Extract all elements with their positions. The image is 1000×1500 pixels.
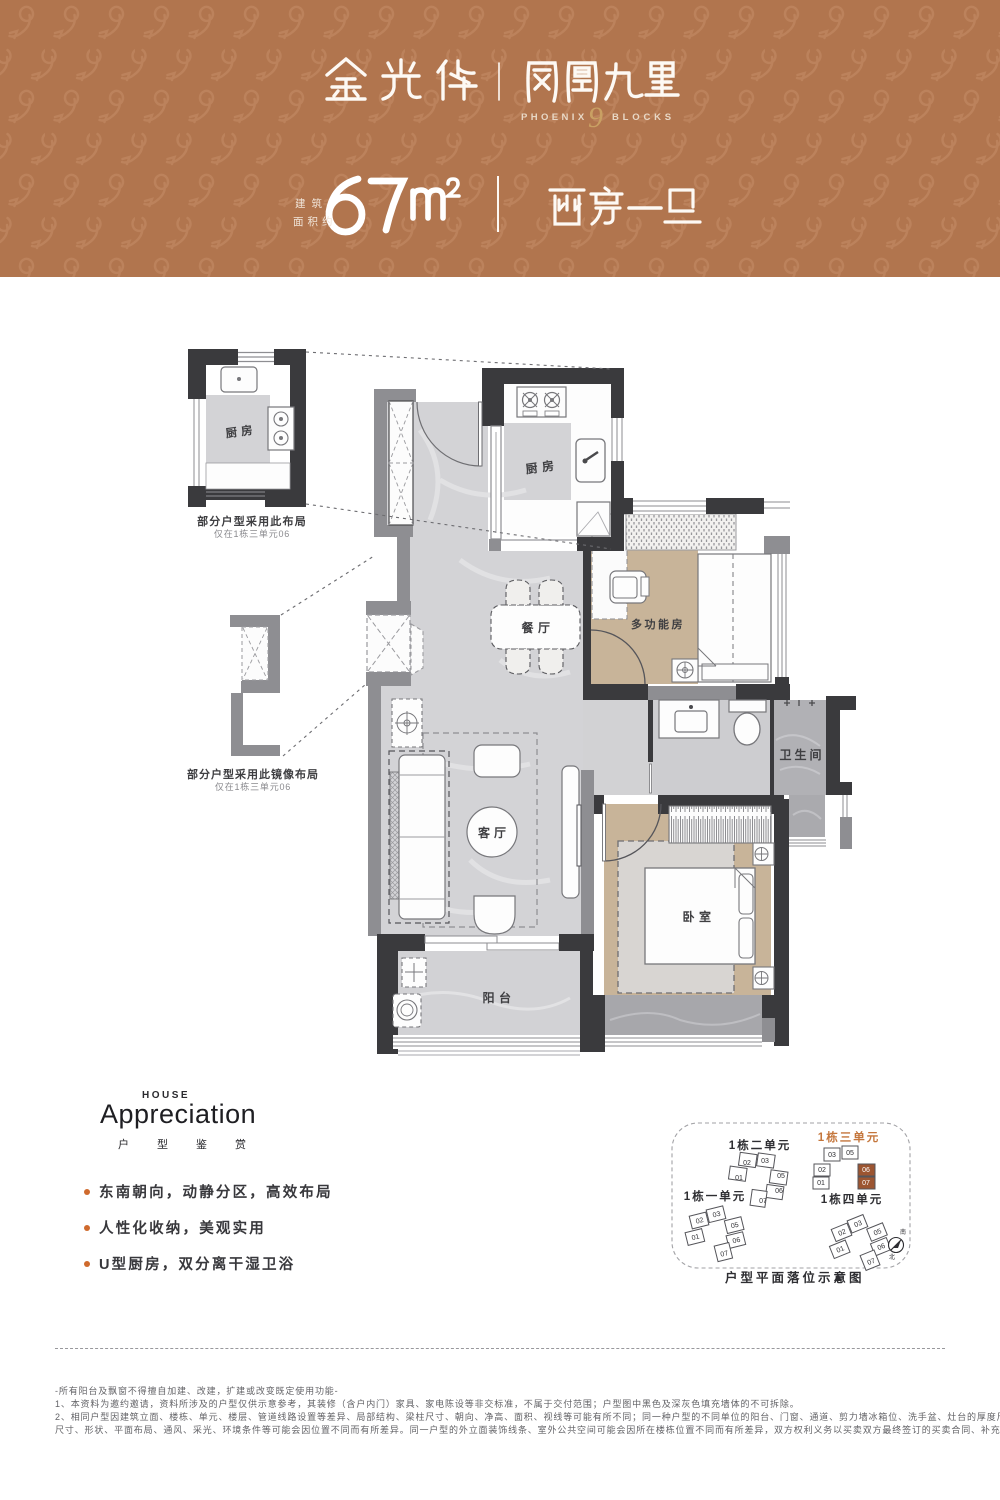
svg-text:02: 02 bbox=[818, 1167, 826, 1174]
svg-text:南: 南 bbox=[900, 1228, 906, 1236]
svg-text:阳台: 阳台 bbox=[482, 990, 515, 1005]
svg-text:仅在1栋三单元06: 仅在1栋三单元06 bbox=[215, 781, 291, 792]
svg-text:02: 02 bbox=[743, 1160, 751, 1167]
svg-text:卧室: 卧室 bbox=[682, 909, 715, 924]
svg-text:01: 01 bbox=[817, 1180, 825, 1187]
svg-text:仅在1栋三单元06: 仅在1栋三单元06 bbox=[214, 528, 290, 539]
svg-text:餐厅: 餐厅 bbox=[521, 620, 554, 635]
svg-text:多功能房: 多功能房 bbox=[631, 617, 685, 631]
svg-text:06: 06 bbox=[862, 1167, 870, 1174]
svg-text:卫生间: 卫生间 bbox=[779, 747, 824, 762]
svg-text:1栋四单元: 1栋四单元 bbox=[821, 1192, 883, 1206]
svg-text:1栋二单元: 1栋二单元 bbox=[729, 1138, 791, 1152]
svg-text:07: 07 bbox=[862, 1180, 870, 1187]
svg-text:06: 06 bbox=[775, 1188, 783, 1195]
svg-text:北: 北 bbox=[889, 1253, 895, 1261]
svg-text:07: 07 bbox=[759, 1198, 767, 1205]
svg-text:05: 05 bbox=[777, 1173, 785, 1180]
svg-text:03: 03 bbox=[828, 1152, 836, 1159]
svg-text:户型平面落位示意图: 户型平面落位示意图 bbox=[725, 1270, 865, 1285]
svg-text:部分户型采用此镜像布局: 部分户型采用此镜像布局 bbox=[187, 767, 319, 781]
svg-text:01: 01 bbox=[735, 1175, 743, 1182]
svg-text:1栋一单元: 1栋一单元 bbox=[684, 1189, 746, 1203]
svg-text:部分户型采用此布局: 部分户型采用此布局 bbox=[197, 514, 307, 528]
svg-text:03: 03 bbox=[761, 1158, 769, 1165]
svg-text:05: 05 bbox=[846, 1150, 854, 1157]
svg-text:客厅: 客厅 bbox=[477, 825, 510, 840]
svg-text:1栋三单元: 1栋三单元 bbox=[818, 1130, 880, 1144]
